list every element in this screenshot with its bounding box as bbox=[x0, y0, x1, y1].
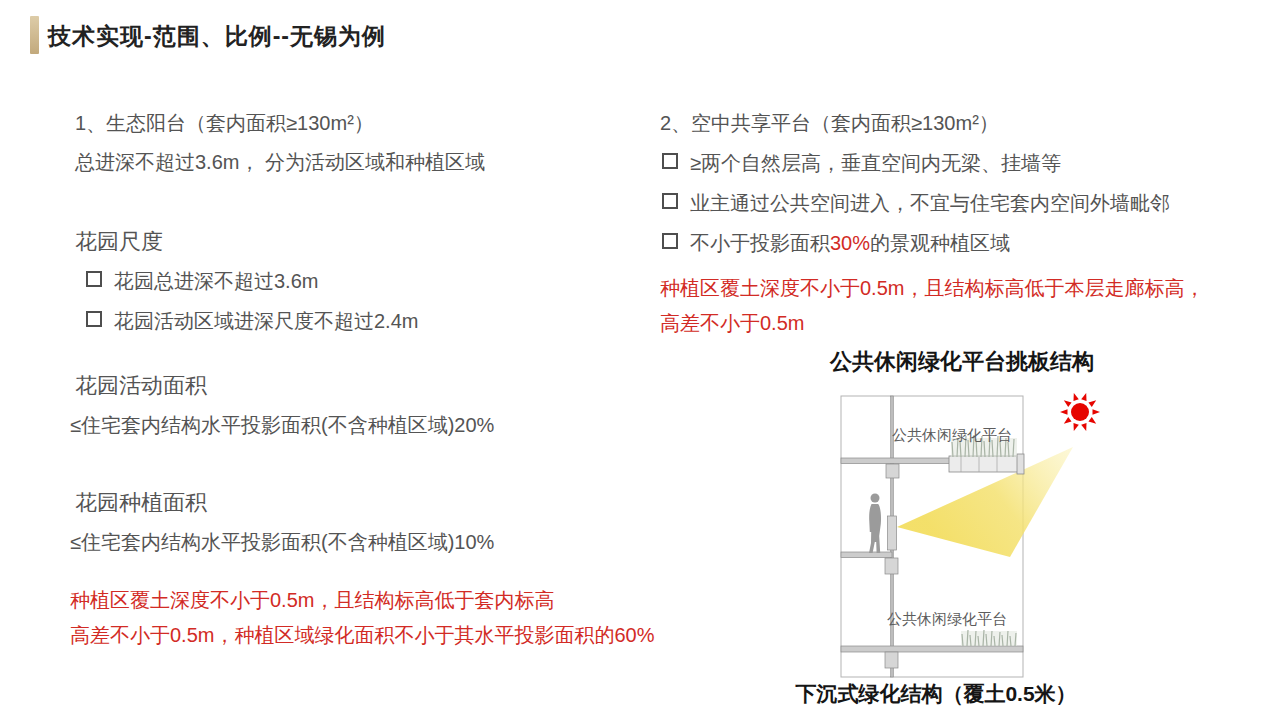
sky-platform-item-3-highlight: 30% bbox=[830, 232, 870, 254]
floor-slab-middle bbox=[841, 552, 892, 558]
garden-scale-item-2: 花园活动区域进深尺度不超过2.4m bbox=[86, 310, 418, 333]
right-note-line-1: 种植区覆土深度不小于0.5m，且结构标高低于本层走廊标高， bbox=[660, 277, 1204, 300]
left-note-line-2: 高差不小于0.5m，种植区域绿化面积不小于其水平投影面积的60% bbox=[70, 624, 655, 647]
garden-scale-item-2-label: 花园活动区域进深尺度不超过2.4m bbox=[114, 310, 418, 332]
column-joint bbox=[885, 652, 898, 668]
garden-activity-title: 花园活动面积 bbox=[75, 373, 207, 398]
page-title: 技术实现-范围、比例--无锡为例 bbox=[48, 21, 386, 52]
sky-platform-item-3-suffix: 的景观种植区域 bbox=[870, 232, 1010, 254]
checkbox-bullet-icon bbox=[86, 271, 102, 287]
sky-platform-item-2-label: 业主通过公共空间进入，不宜与住宅套内空间外墙毗邻 bbox=[690, 192, 1170, 214]
title-accent-bar bbox=[30, 16, 39, 54]
right-note-line-2: 高差不小于0.5m bbox=[660, 312, 804, 335]
eco-balcony-intro: 总进深不超过3.6m， 分为活动区域和种植区域 bbox=[75, 151, 485, 174]
checkbox-bullet-icon bbox=[662, 193, 678, 209]
garden-activity-body: ≤住宅套内结构水平投影面积(不含种植区域)20% bbox=[70, 414, 494, 437]
sky-platform-item-3-prefix: 不小于投影面积 bbox=[690, 232, 830, 254]
diagram-caption: 下沉式绿化结构（覆土0.5米） bbox=[768, 680, 1104, 708]
floor-slab-upper bbox=[841, 458, 953, 464]
building-section-diagram: 公共休闲绿化平台 公共休闲绿化平台 bbox=[835, 386, 1115, 682]
checkbox-bullet-icon bbox=[86, 311, 102, 327]
column-joint bbox=[885, 558, 898, 574]
diagram-label-bottom: 公共休闲绿化平台 bbox=[887, 610, 1007, 627]
planter-box bbox=[949, 456, 1019, 472]
sky-platform-item-3: 不小于投影面积30%的景观种植区域 bbox=[662, 232, 1010, 255]
sky-platform-item-1-label: ≥两个自然层高，垂直空间内无梁、挂墙等 bbox=[690, 152, 1061, 174]
diagram-label-top: 公共休闲绿化平台 bbox=[892, 426, 1012, 443]
planter-end-cap bbox=[1017, 454, 1024, 474]
garden-scale-item-1: 花园总进深不超过3.6m bbox=[86, 270, 318, 293]
checkbox-bullet-icon bbox=[662, 233, 678, 249]
garden-planting-body: ≤住宅套内结构水平投影面积(不含种植区域)10% bbox=[70, 531, 494, 554]
column-joint bbox=[886, 464, 899, 478]
eco-balcony-heading: 1、生态阳台（套内面积≥130m²） bbox=[75, 112, 374, 135]
sky-platform-item-1: ≥两个自然层高，垂直空间内无梁、挂墙等 bbox=[662, 152, 1061, 175]
garden-scale-item-1-label: 花园总进深不超过3.6m bbox=[114, 270, 318, 292]
garden-planting-title: 花园种植面积 bbox=[75, 490, 207, 515]
left-note-line-1: 种植区覆土深度不小于0.5m，且结构标高低于套内标高 bbox=[70, 589, 554, 612]
plants-lower bbox=[961, 630, 1017, 646]
sky-platform-heading: 2、空中共享平台（套内面积≥130m²） bbox=[660, 112, 999, 135]
presentation-slide: 技术实现-范围、比例--无锡为例 1、生态阳台（套内面积≥130m²） 总进深不… bbox=[0, 0, 1280, 720]
sky-platform-item-2: 业主通过公共空间进入，不宜与住宅套内空间外墙毗邻 bbox=[662, 192, 1170, 215]
checkbox-bullet-icon bbox=[662, 153, 678, 169]
diagram-title: 公共休闲绿化平台挑板结构 bbox=[826, 347, 1098, 377]
floor-slab-bottom bbox=[841, 646, 1023, 652]
garden-scale-title: 花园尺度 bbox=[75, 229, 163, 254]
column-joint bbox=[888, 516, 897, 550]
sun-icon bbox=[1060, 392, 1100, 432]
